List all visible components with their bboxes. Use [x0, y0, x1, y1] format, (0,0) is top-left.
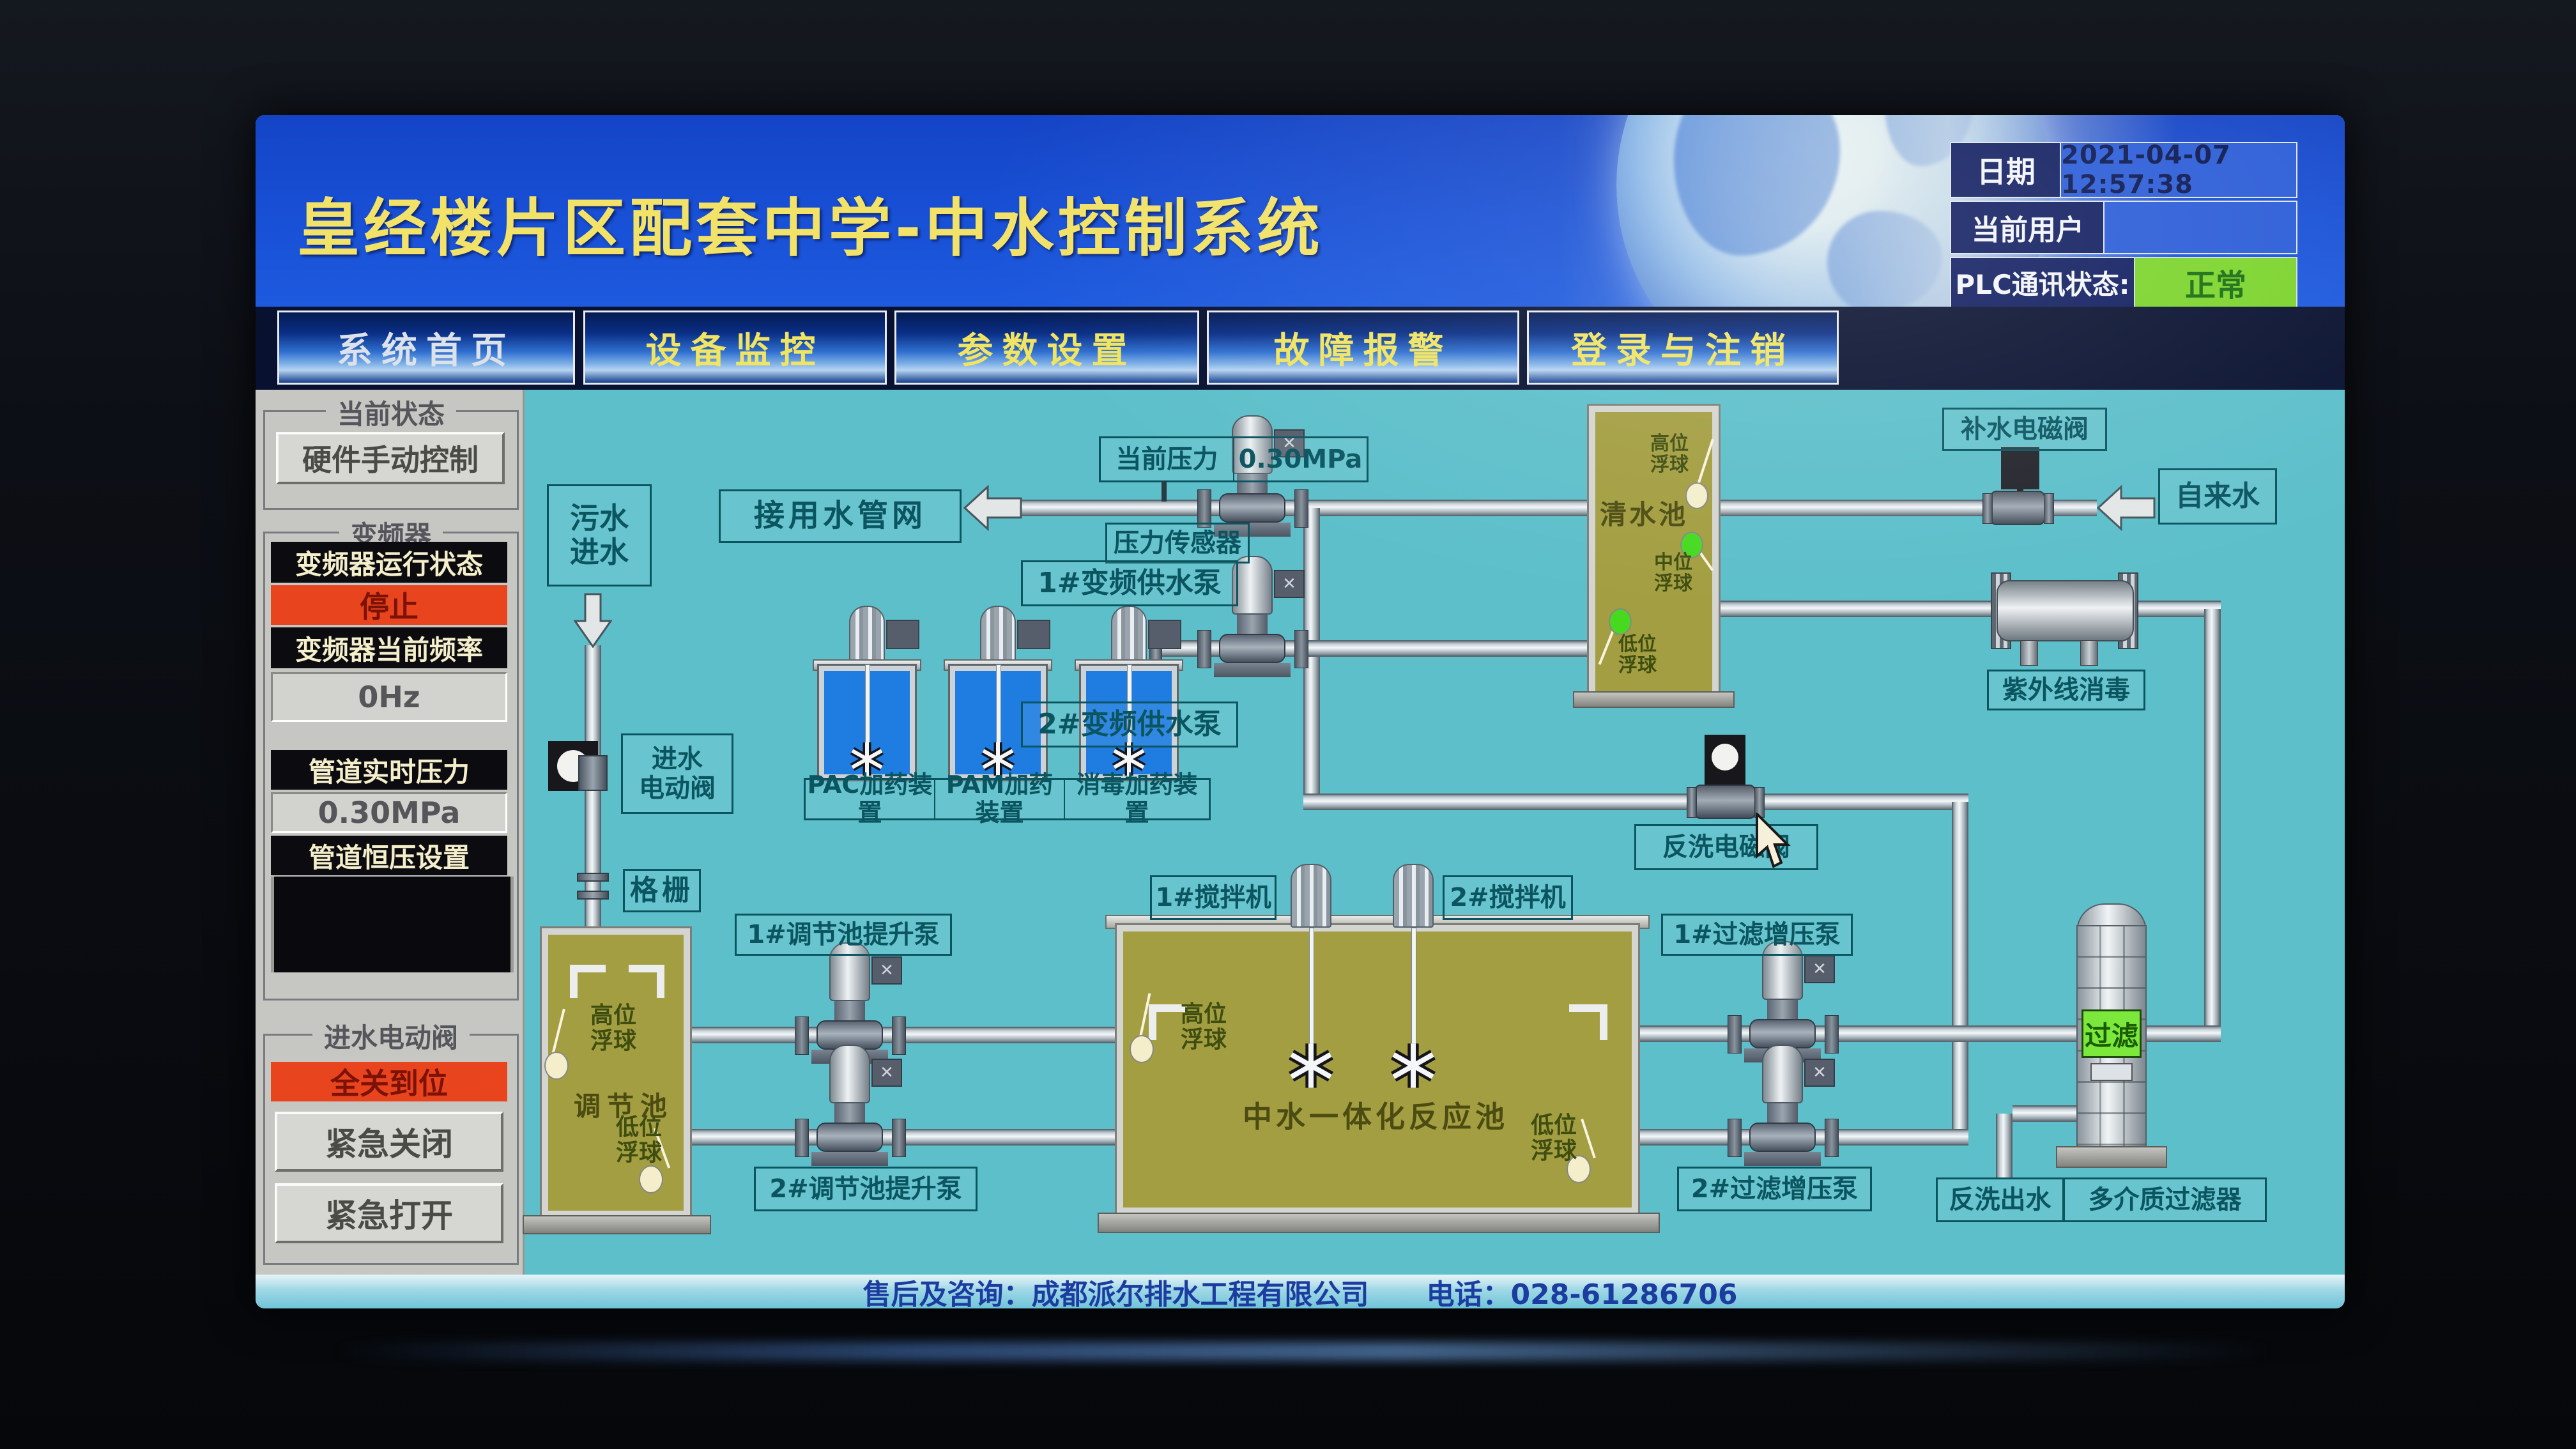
current-user-label: 当前用户: [1950, 201, 2106, 254]
dosing-label-pam: PAM加药装置: [934, 778, 1065, 820]
float-low-label: 低位 浮球: [601, 1115, 677, 1165]
pressure-setpoint-input[interactable]: [271, 877, 514, 972]
flow-arrow-left-icon: [2097, 484, 2156, 532]
tab-alarms[interactable]: 故障报警: [1207, 310, 1519, 385]
dosing-valve-icon: [886, 620, 919, 649]
inlet-valve-status: 全关到位: [271, 1062, 507, 1101]
emergency-open-button[interactable]: 紧急打开: [275, 1183, 503, 1243]
float-low-label: 低位 浮球: [1515, 1113, 1592, 1163]
dosing-motor-icon: [980, 606, 1016, 664]
backwash-valve-indicator: [1712, 744, 1738, 770]
manual-control-button[interactable]: 硬件手动控制: [276, 432, 505, 484]
backwash-valve-body: [1694, 785, 1756, 819]
inlet-valve-label: 进水 电动阀: [621, 733, 733, 814]
network-label: 接用水管网: [719, 489, 962, 543]
reaction-tank: [1117, 925, 1638, 1214]
pressure-sensor-label: 压力传感器: [1105, 523, 1250, 563]
uv-disinfector-icon: [1997, 580, 2134, 641]
uv-return-riser: [2204, 609, 2221, 1042]
valve-flange: [1687, 787, 1697, 818]
dosing-motor-icon: [1111, 606, 1147, 664]
bezel-reflection: [332, 1342, 2274, 1361]
grid-screen-label: 格栅: [623, 869, 701, 912]
current-user-value: [2103, 201, 2297, 254]
footer-phone-text: 电话：028-61286706: [1426, 1271, 1737, 1309]
dosing-valve-icon: [1148, 620, 1181, 649]
float-high-icon: [544, 1052, 569, 1080]
overflow-notch: [1149, 1004, 1156, 1040]
float-low-icon: [639, 1165, 663, 1193]
vfd-run-state-label: 变频器运行状态: [271, 542, 507, 583]
makeup-valve-label: 补水电磁阀: [1942, 408, 2107, 451]
float-low-icon: [1609, 608, 1632, 635]
backwash-out-stub: [2012, 1105, 2079, 1122]
grid-screen-joint: [577, 891, 609, 900]
valve-flange: [1982, 493, 1993, 524]
mixer-shaft: [1309, 928, 1314, 1057]
inlet-valve-body: [578, 755, 608, 791]
float-high-label: 高位 浮球: [575, 1003, 652, 1054]
backwash-riser: [1952, 802, 1968, 1146]
filter-tower-base: [2056, 1146, 2167, 1168]
filter-level-window: [2090, 1063, 2133, 1081]
header: 皇经楼片区配套中学-中水控制系统 日期 2021-04-07 12:57:38 …: [256, 115, 2345, 307]
float-high-label: 高位 浮球: [1647, 433, 1692, 475]
filter-pump1-pipe: [1638, 1025, 2076, 1042]
sewage-inlet-label: 污水 进水: [547, 484, 652, 586]
vfd-freq-label: 变频器当前频率: [271, 627, 507, 668]
reaction-mixer-1-motor: [1291, 864, 1331, 928]
dosing-label-disinfect: 消毒加药装置: [1064, 778, 1211, 820]
mixer-1-label: 1#搅拌机: [1150, 875, 1276, 920]
flow-arrow-left-icon: [963, 484, 1022, 532]
uv-pipe: [1719, 601, 2221, 617]
vfd-run-state-value: 停止: [271, 585, 507, 625]
mixer-2-label: 2#搅拌机: [1443, 875, 1573, 920]
regulation-tank-base: [523, 1215, 711, 1234]
uv-leg: [2020, 640, 2038, 666]
group-current-status-label: 当前状态: [326, 393, 456, 432]
dosing-motor-icon: [849, 606, 885, 664]
overflow-notch: [1600, 1004, 1607, 1040]
current-pressure-value: 0.30MPa: [1233, 436, 1368, 482]
mixer-propeller-icon: [1285, 1040, 1337, 1091]
pipe-pressure-value: 0.30MPa: [271, 792, 507, 833]
lift-pump-2-icon: ✕: [786, 1045, 914, 1172]
tab-params[interactable]: 参数设置: [894, 310, 1199, 385]
supply-pump-2-label: 2#变频供水泵: [1021, 701, 1238, 747]
tower-outlet-pipe: [2147, 1025, 2221, 1042]
reaction-mixer-2-motor: [1393, 864, 1434, 928]
backwash-pipe: [1303, 793, 1968, 810]
flow-arrow-down-icon: [574, 593, 612, 648]
tab-home[interactable]: 系统首页: [277, 310, 575, 385]
valve-flange: [2044, 493, 2054, 524]
float-mid-label: 中位 浮球: [1651, 552, 1696, 594]
plc-status-label: PLC通讯状态:: [1950, 257, 2135, 307]
nav-bar: 系统首页 设备监控 参数设置 故障报警 登录与注销: [256, 307, 2345, 390]
footer-bar: 售后及咨询：成都派尔排水工程有限公司 电话：028-61286706: [256, 1275, 2345, 1308]
lift-pump-2-label: 2#调节池提升泵: [754, 1167, 977, 1211]
pressure-setpoint-label: 管道恒压设置: [271, 836, 507, 875]
photo-bezel: 皇经楼片区配套中学-中水控制系统 日期 2021-04-07 12:57:38 …: [0, 0, 2576, 1449]
grid-screen-joint: [577, 873, 609, 882]
filter-pump-2-label: 2#过滤增压泵: [1677, 1167, 1872, 1211]
group-inlet-valve-label: 进水电动阀: [312, 1016, 470, 1055]
pipe-pressure-label: 管道实时压力: [271, 750, 507, 790]
float-high-icon: [1685, 482, 1708, 509]
float-high-label: 高位 浮球: [1165, 1002, 1242, 1052]
vfd-freq-value: 0Hz: [271, 672, 507, 722]
makeup-valve-actuator[interactable]: [2001, 447, 2039, 489]
media-filter-label: 多介质过滤器: [2064, 1177, 2267, 1222]
dosing-label-pac: PAC加药装置: [804, 778, 935, 820]
reaction-tank-base: [1098, 1213, 1660, 1233]
float-low-label: 低位 浮球: [1615, 634, 1660, 676]
lift-pump-1-label: 1#调节池提升泵: [735, 914, 952, 956]
uv-label: 紫外线消毒: [1987, 670, 2145, 710]
mixer-propeller-icon: [1388, 1040, 1439, 1091]
hmi-screen: 皇经楼片区配套中学-中水控制系统 日期 2021-04-07 12:57:38 …: [256, 115, 2345, 1308]
emergency-close-button[interactable]: 紧急关闭: [275, 1112, 503, 1172]
reaction-tank-name: 中水一体化反应池: [1243, 1094, 1508, 1136]
tab-monitor[interactable]: 设备监控: [583, 310, 887, 385]
plc-status-badge: 正常: [2134, 257, 2297, 307]
clear-water-tank-name: 清水池: [1600, 493, 1688, 532]
float-high-icon: [1130, 1035, 1154, 1063]
backwash-out-drop: [1996, 1114, 2012, 1177]
overflow-notch: [657, 965, 664, 998]
filter-pump-1-label: 1#过滤增压泵: [1661, 914, 1853, 956]
overflow-notch: [570, 965, 578, 998]
supply-pump-1-label: 1#变频供水泵: [1021, 560, 1238, 606]
clear-water-tank-base: [1573, 691, 1735, 708]
date-value: 2021-04-07 12:57:38: [2060, 142, 2297, 198]
backwash-out-label: 反洗出水: [1936, 1177, 2064, 1222]
footer-service-text: 售后及咨询：成都派尔排水工程有限公司: [862, 1271, 1368, 1309]
uv-leg: [2080, 640, 2098, 666]
filter-state-indicator: 过滤: [2081, 1009, 2142, 1058]
page-title: 皇经楼片区配套中学-中水控制系统: [297, 178, 1324, 268]
makeup-valve-body: [1990, 491, 2045, 525]
current-pressure-label: 当前压力: [1099, 436, 1234, 482]
date-label: 日期: [1950, 142, 2062, 198]
tab-login[interactable]: 登录与注销: [1527, 310, 1839, 385]
filter-pump-2-icon: ✕: [1719, 1045, 1846, 1172]
mixer-shaft: [1411, 928, 1416, 1057]
sensor-stub: [1161, 481, 1167, 502]
mouse-cursor: [1756, 813, 1797, 871]
dosing-valve-icon: [1017, 620, 1050, 649]
tap-water-label: 自来水: [2158, 468, 2277, 525]
